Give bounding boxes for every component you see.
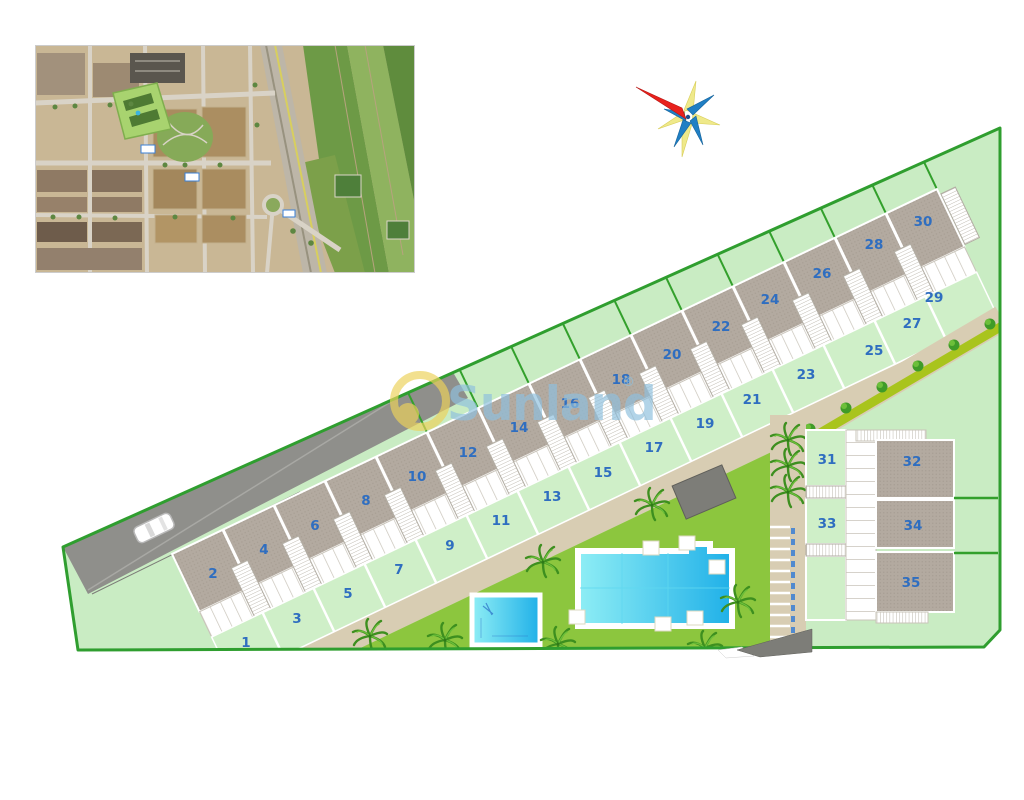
unit-label-1: 1 [241, 635, 250, 651]
unit-label-6: 6 [310, 518, 319, 534]
main-pool [569, 536, 732, 631]
unit-label-21: 21 [743, 392, 762, 408]
unit-label-26: 26 [813, 266, 832, 282]
bottom-cap-stairs [876, 612, 928, 623]
unit-label-7: 7 [394, 562, 403, 578]
unit-label-22: 22 [712, 319, 731, 335]
unit-label-24: 24 [761, 292, 780, 308]
unit-label-9: 9 [445, 538, 454, 554]
unit-label-5: 5 [343, 586, 352, 602]
unit-label-19: 19 [696, 416, 715, 432]
unit-label-4: 4 [259, 542, 268, 558]
unit-label-23: 23 [797, 367, 816, 383]
vertical-path [770, 415, 806, 650]
brand-registered-mark: ® [622, 375, 635, 390]
unit-label-32: 32 [903, 454, 922, 470]
unit-label-30: 30 [914, 214, 933, 230]
unit-label-34: 34 [904, 518, 923, 534]
kids-pool [472, 595, 540, 645]
site-plan: 1 2 3 4 5 6 7 8 9 10 11 12 13 14 15 16 1… [0, 0, 1024, 800]
unit-label-10: 10 [408, 469, 427, 485]
unit-label-33: 33 [818, 516, 837, 532]
brand-dot-icon [397, 403, 419, 425]
terrace-column [846, 430, 876, 620]
unit-label-3: 3 [292, 611, 301, 627]
page: 1 2 3 4 5 6 7 8 9 10 11 12 13 14 15 16 1… [0, 0, 1024, 800]
stair-connector [806, 486, 846, 498]
unit-label-35: 35 [902, 575, 921, 591]
unit-label-13: 13 [543, 489, 562, 505]
unit-label-11: 11 [492, 513, 511, 529]
unit-label-17: 17 [645, 440, 664, 456]
unit-label-8: 8 [361, 493, 370, 509]
unit-label-27: 27 [903, 316, 922, 332]
unit-label-15: 15 [594, 465, 613, 481]
unit-label-25: 25 [865, 343, 884, 359]
unit-label-12: 12 [459, 445, 478, 461]
plot-35-garden [806, 556, 846, 620]
unit-label-28: 28 [865, 237, 884, 253]
stair-connector [806, 544, 846, 556]
unit-label-20: 20 [663, 347, 682, 363]
unit-label-2: 2 [208, 566, 217, 582]
unit-label-29: 29 [925, 290, 944, 306]
unit-label-31: 31 [818, 452, 837, 468]
